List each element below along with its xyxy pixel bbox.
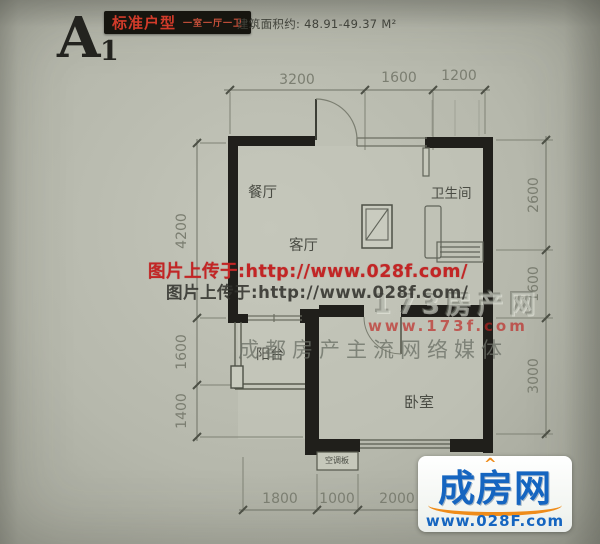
dim-right-1: 2600 xyxy=(526,177,542,213)
watermark-slogan: 成都房产主流网络媒体 xyxy=(238,334,508,364)
dim-bottom-1: 1800 xyxy=(262,491,298,507)
dim-left-1: 4200 xyxy=(174,213,190,249)
room-label-bedroom: 卧室 xyxy=(404,393,434,411)
floorplan-photo: A 1 标准户型 一室一厅一卫 建筑面积约: 48.91-49.37 M² xyxy=(0,0,600,544)
flue-shaft xyxy=(362,205,392,248)
room-label-living: 客厅 xyxy=(289,237,318,254)
dim-left-2: 1600 xyxy=(174,334,190,370)
entrance-door xyxy=(316,99,357,140)
watermark-upload-url-dark: 图片上传于:http://www.028f.com/ xyxy=(166,279,468,303)
dim-bottom-2: 1000 xyxy=(319,491,355,507)
bedroom-window xyxy=(360,440,450,448)
logo-site-url: www.028F.com xyxy=(418,512,572,530)
dim-right-3: 3000 xyxy=(526,358,542,394)
dim-top-2: 1600 xyxy=(381,70,417,86)
dim-top-3: 1200 xyxy=(441,68,477,84)
room-label-bathroom: 卫生间 xyxy=(431,186,472,202)
room-label-dining: 餐厅 xyxy=(248,184,277,201)
dim-top-1: 3200 xyxy=(279,72,315,88)
room-label-ac: 空调板 xyxy=(325,455,349,465)
dim-left-3: 1400 xyxy=(174,393,190,429)
neighbor-lines xyxy=(432,100,479,136)
thin-top-wall xyxy=(357,138,427,146)
site-logo: ^ 成房网 www.028F.com xyxy=(418,456,572,532)
watermark-site-url: www.173f.com xyxy=(368,317,528,335)
dim-bottom-3: 2000 xyxy=(379,491,415,507)
